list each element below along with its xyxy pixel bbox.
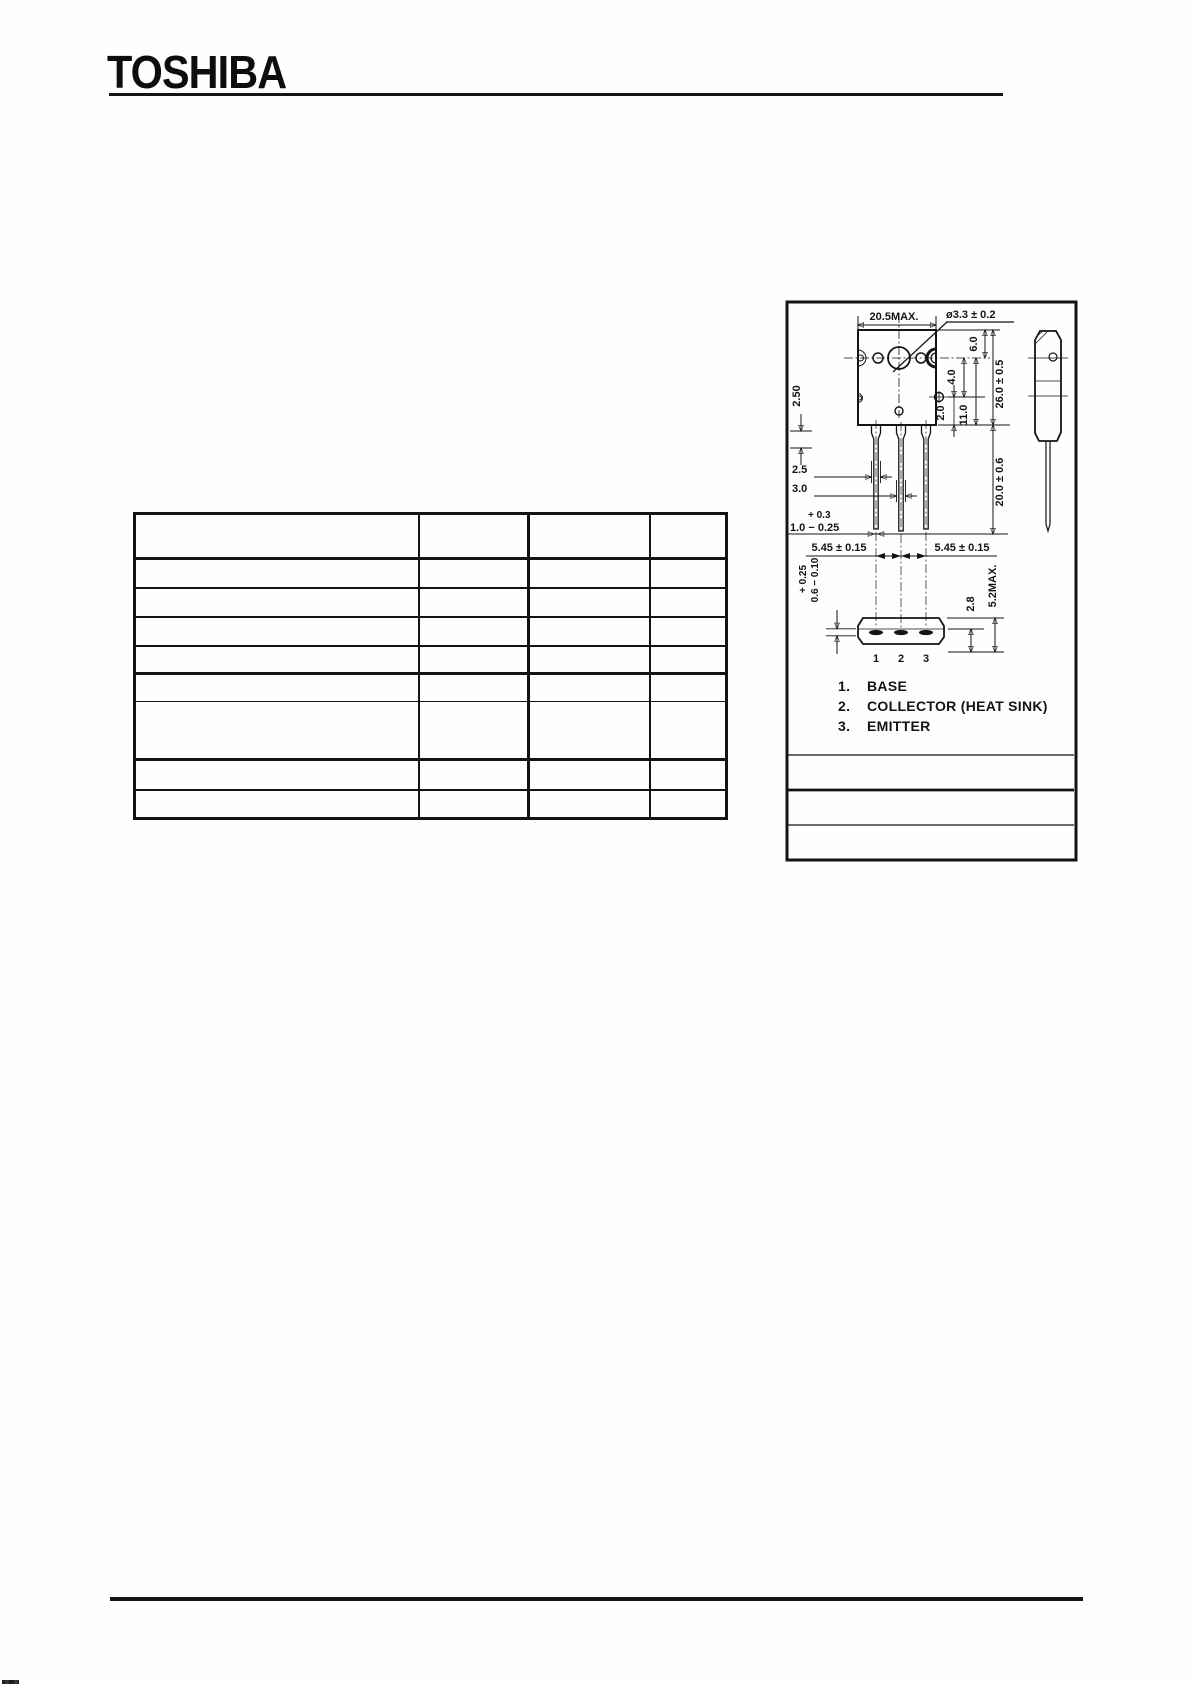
datasheet-page: TOSHIBA (0, 0, 1192, 1685)
table-row (135, 702, 727, 760)
pin-number: 1 (873, 653, 879, 665)
pin-number: 3 (923, 653, 929, 665)
table-cell (529, 702, 650, 760)
table-cell (135, 559, 419, 588)
dim-hole-dia: ø3.3 ± 0.2 (946, 309, 995, 321)
table-cell (529, 559, 650, 588)
dim-body-width: 20.5MAX. (870, 311, 919, 323)
dim-lead-thk-plus: + 0.3 (808, 510, 831, 521)
dim-pin-thk-plus: + 0.25 (798, 565, 809, 594)
pin-section (919, 630, 933, 635)
table-header-cell (419, 514, 529, 559)
pin-list-num: 3. (838, 718, 850, 734)
table-row (135, 760, 727, 790)
table-cell (135, 617, 419, 646)
table-header-cell (135, 514, 419, 559)
dim-lead-width-outer: 2.5 (792, 464, 807, 476)
table-cell (135, 674, 419, 702)
table-header-cell (529, 514, 650, 559)
table-cell (419, 617, 529, 646)
front-view-dimensions-right: 2.0 4.0 11.0 6.0 26.0 ± 0.5 20.0 ± 0.6 (935, 330, 1010, 534)
table-cell (529, 790, 650, 819)
pin-section (894, 630, 908, 635)
table-header-row (135, 514, 727, 559)
table-cell (529, 588, 650, 617)
dim-shoulder: 2.50 (791, 385, 803, 406)
max-ratings-table (133, 512, 728, 820)
table-cell (650, 559, 727, 588)
toshiba-logo: TOSHIBA (107, 45, 286, 99)
dim-hole-offset-b: 2.0 (935, 405, 947, 420)
pin-list-label: EMITTER (867, 718, 931, 734)
package-outline-drawing: 20.5MAX. ø3.3 ± 0.2 (730, 299, 1080, 862)
pin-list-label: COLLECTOR (HEAT SINK) (867, 698, 1048, 714)
dim-standoff: 2.8 (965, 596, 977, 611)
table-cell (650, 646, 727, 674)
dim-body-height: 26.0 ± 0.5 (994, 360, 1006, 409)
pin-section (869, 630, 883, 635)
table-cell (419, 790, 529, 819)
table-cell (650, 702, 727, 760)
table-row (135, 674, 727, 702)
table-cell (650, 790, 727, 819)
table-cell (135, 760, 419, 790)
table-row (135, 617, 727, 646)
drawing-frame (787, 302, 1076, 860)
dim-tab-height: 11.0 (958, 405, 970, 426)
table-cell (650, 588, 727, 617)
table-cell (135, 790, 419, 819)
table-cell (419, 646, 529, 674)
table-cell (419, 674, 529, 702)
table-cell (650, 760, 727, 790)
table-cell (529, 646, 650, 674)
table-cell (650, 617, 727, 646)
table-cell (529, 760, 650, 790)
pin-list-label: BASE (867, 678, 907, 694)
dim-lead-width-center: 3.0 (792, 483, 807, 495)
table-cell (135, 646, 419, 674)
dim-base-height: 5.2MAX. (987, 565, 999, 608)
scan-artifact (2, 1680, 19, 1684)
header-rule (109, 93, 1003, 96)
table-cell (419, 702, 529, 760)
table-cell (419, 760, 529, 790)
table-cell (135, 702, 419, 760)
dim-lead-thk: 1.0 − 0.25 (790, 522, 839, 534)
leads (872, 420, 931, 628)
dim-hole-offset-a: 4.0 (946, 369, 958, 384)
side-view (1028, 331, 1068, 531)
dim-hole-to-top: 6.0 (968, 336, 980, 351)
table-row (135, 559, 727, 588)
dim-lead-pitch-right: 5.45 ± 0.15 (935, 542, 990, 554)
table-cell (529, 617, 650, 646)
table-cell (419, 559, 529, 588)
pin-name-list: 1. BASE 2. COLLECTOR (HEAT SINK) 3. EMIT… (838, 678, 1048, 734)
table-row (135, 646, 727, 674)
table-header-cell (650, 514, 727, 559)
table-row (135, 790, 727, 819)
dim-pin-thk: 0.6 − 0.10 (810, 557, 821, 602)
footer-rule (110, 1597, 1083, 1601)
pin-number: 2 (898, 653, 904, 665)
table-cell (650, 674, 727, 702)
dim-lead-pitch-left: 5.45 ± 0.15 (812, 542, 867, 554)
table-row (135, 588, 727, 617)
table-cell (419, 588, 529, 617)
table-cell (135, 588, 419, 617)
pin-list-num: 1. (838, 678, 850, 694)
pin-list-num: 2. (838, 698, 850, 714)
table-cell (529, 674, 650, 702)
dim-lead-length: 20.0 ± 0.6 (994, 458, 1006, 507)
